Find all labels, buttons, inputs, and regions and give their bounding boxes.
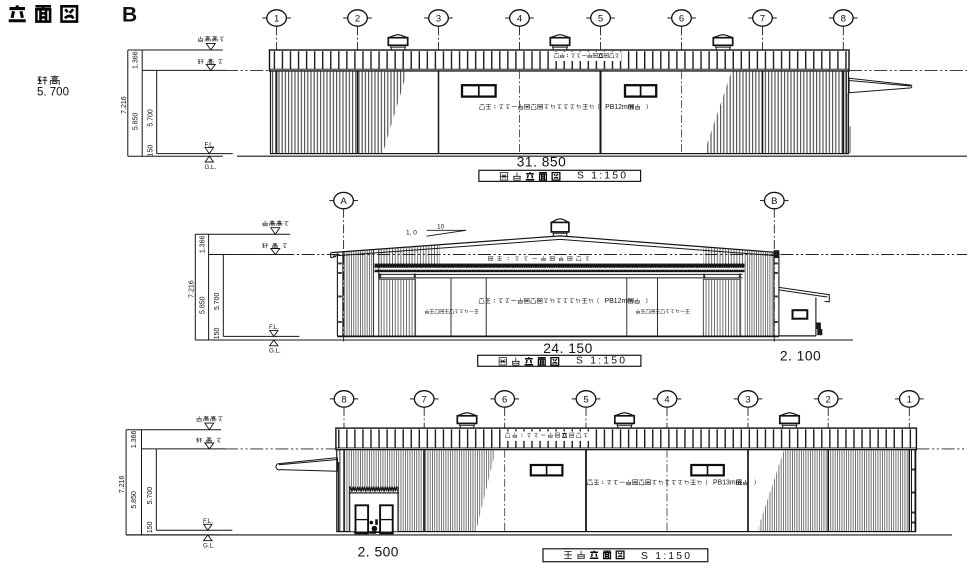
svg-text:5.850: 5.850 [199,296,206,314]
svg-text:4: 4 [517,13,522,24]
svg-text:B: B [122,4,137,27]
svg-text:3: 3 [745,394,750,405]
svg-text:6: 6 [502,394,507,405]
svg-text:G.L.: G.L. [203,543,215,550]
svg-text:1.366: 1.366 [199,236,206,254]
svg-text:1.366: 1.366 [131,430,138,448]
svg-text:2. 500: 2. 500 [358,544,399,559]
svg-text:S 1:150: S 1:150 [641,551,692,562]
svg-text:31. 850: 31. 850 [517,155,567,170]
svg-text:2: 2 [826,394,831,405]
svg-text:24. 150: 24. 150 [543,341,593,356]
svg-text:A: A [340,196,347,207]
svg-text:S 1:150: S 1:150 [577,171,628,182]
svg-text:PB13mm: PB13mm [713,480,742,487]
svg-text:150: 150 [147,521,154,533]
svg-text:8: 8 [341,394,346,405]
svg-text:5. 700: 5. 700 [37,87,69,99]
svg-text:1.366: 1.366 [132,51,139,69]
svg-text:5.700: 5.700 [214,293,221,311]
svg-text:PB12mm: PB12mm [605,298,634,305]
svg-text:7.216: 7.216 [121,96,128,114]
svg-text:1, 0: 1, 0 [406,230,417,237]
svg-text:7: 7 [760,13,765,24]
svg-text:2: 2 [355,13,360,24]
svg-text:1: 1 [274,13,279,24]
svg-text:150: 150 [148,145,155,157]
svg-text:10: 10 [437,224,445,231]
svg-text:PB12mm: PB12mm [605,104,634,111]
svg-text:5.850: 5.850 [131,491,138,509]
svg-text:5: 5 [598,13,603,24]
svg-text:3: 3 [436,13,441,24]
svg-text:5.700: 5.700 [148,109,155,127]
svg-text:S 1:150: S 1:150 [576,356,627,367]
svg-text:1: 1 [907,394,912,405]
svg-text:7.216: 7.216 [188,280,195,298]
svg-text:5.850: 5.850 [132,112,139,130]
svg-text:7: 7 [422,394,427,405]
svg-text:G.L.: G.L. [269,348,281,355]
svg-text:4: 4 [664,394,669,405]
svg-text:6: 6 [679,13,684,24]
svg-text:5: 5 [583,394,588,405]
svg-text:G.L.: G.L. [205,164,217,171]
svg-text:B: B [771,196,777,207]
svg-text:150: 150 [214,327,221,339]
svg-text:8: 8 [841,13,846,24]
svg-text:7.216: 7.216 [119,475,126,493]
svg-text:2. 100: 2. 100 [780,348,821,363]
svg-text:5.700: 5.700 [147,487,154,505]
